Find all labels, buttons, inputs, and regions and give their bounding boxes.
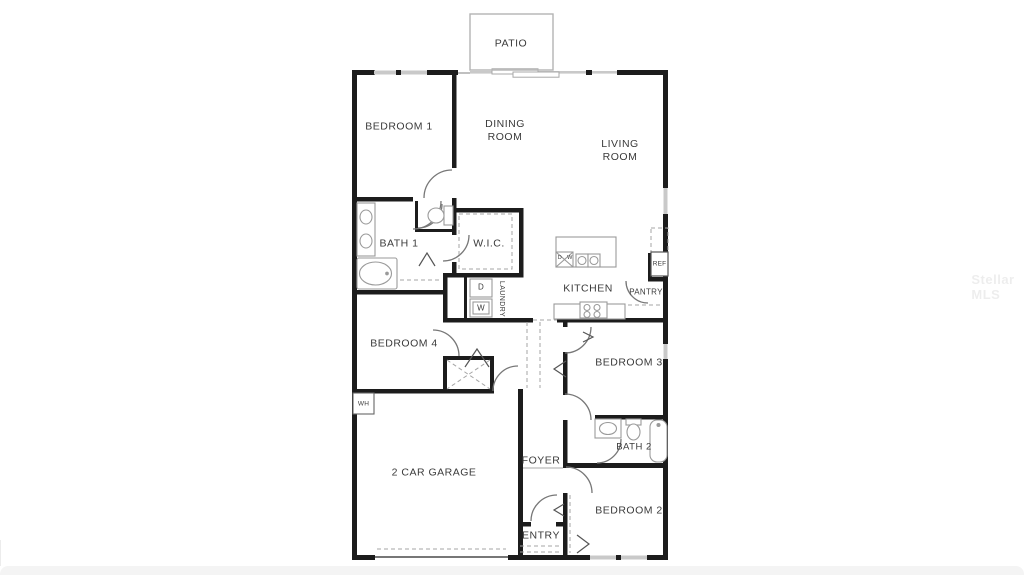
room-label-foyer: FOYER <box>522 455 561 468</box>
room-label-bath-2: BATH 2 <box>616 441 652 454</box>
bath2-vanity <box>595 419 621 438</box>
wic-door <box>443 235 469 261</box>
entry-door <box>531 495 557 521</box>
kitchen-island <box>556 237 616 267</box>
room-label-entry: ENTRY <box>522 530 560 543</box>
room-label-dining-room: DINING ROOM <box>485 118 525 144</box>
bedroom2-door <box>566 467 592 493</box>
bath2-toilet <box>626 419 641 440</box>
garage-entry-door <box>493 366 518 391</box>
footer-band <box>0 566 1024 575</box>
fixture-label-wh: WH <box>358 400 369 407</box>
bedroom1-door <box>424 170 452 198</box>
hall-vestibule-door <box>565 394 591 420</box>
bath1-toilet <box>428 206 453 225</box>
room-label-garage: 2 CAR GARAGE <box>392 467 477 480</box>
stellar-mls-watermark: Stellar MLS <box>971 272 1014 302</box>
fixture-label-ref: REF <box>653 261 667 268</box>
kitchen-counter <box>554 302 625 319</box>
room-label-living-room: LIVING ROOM <box>601 138 638 164</box>
fixture-label-washer: W <box>477 304 485 313</box>
room-label-wic: W.I.C. <box>473 238 505 251</box>
fixture-label-dryer: D <box>478 283 484 292</box>
bath2-tub <box>650 420 667 462</box>
room-label-kitchen: KITCHEN <box>563 283 613 296</box>
room-label-laundry: LAUNDRY <box>497 281 505 317</box>
room-label-pantry: PANTRY <box>629 288 663 297</box>
bath1-vanity <box>357 203 375 256</box>
floorplan-drawing <box>0 0 1024 575</box>
floorplan-page: PATIO BEDROOM 1 DINING ROOM LIVING ROOM … <box>0 0 1024 575</box>
room-label-bedroom-3: BEDROOM 3 <box>595 357 663 370</box>
room-label-bedroom-1: BEDROOM 1 <box>365 121 433 134</box>
garage-door-line <box>375 556 508 558</box>
room-label-patio: PATIO <box>495 38 527 51</box>
fixture-label-island-d: D <box>558 255 562 261</box>
room-label-bedroom-2: BEDROOM 2 <box>595 505 663 518</box>
room-label-bedroom-4: BEDROOM 4 <box>370 338 438 351</box>
card-edge-line <box>0 540 1 566</box>
bath1-tub <box>357 258 397 289</box>
room-label-bath-1: BATH 1 <box>380 238 419 251</box>
dashed-lines <box>356 214 669 553</box>
fixture-label-island-w: W <box>567 255 573 261</box>
